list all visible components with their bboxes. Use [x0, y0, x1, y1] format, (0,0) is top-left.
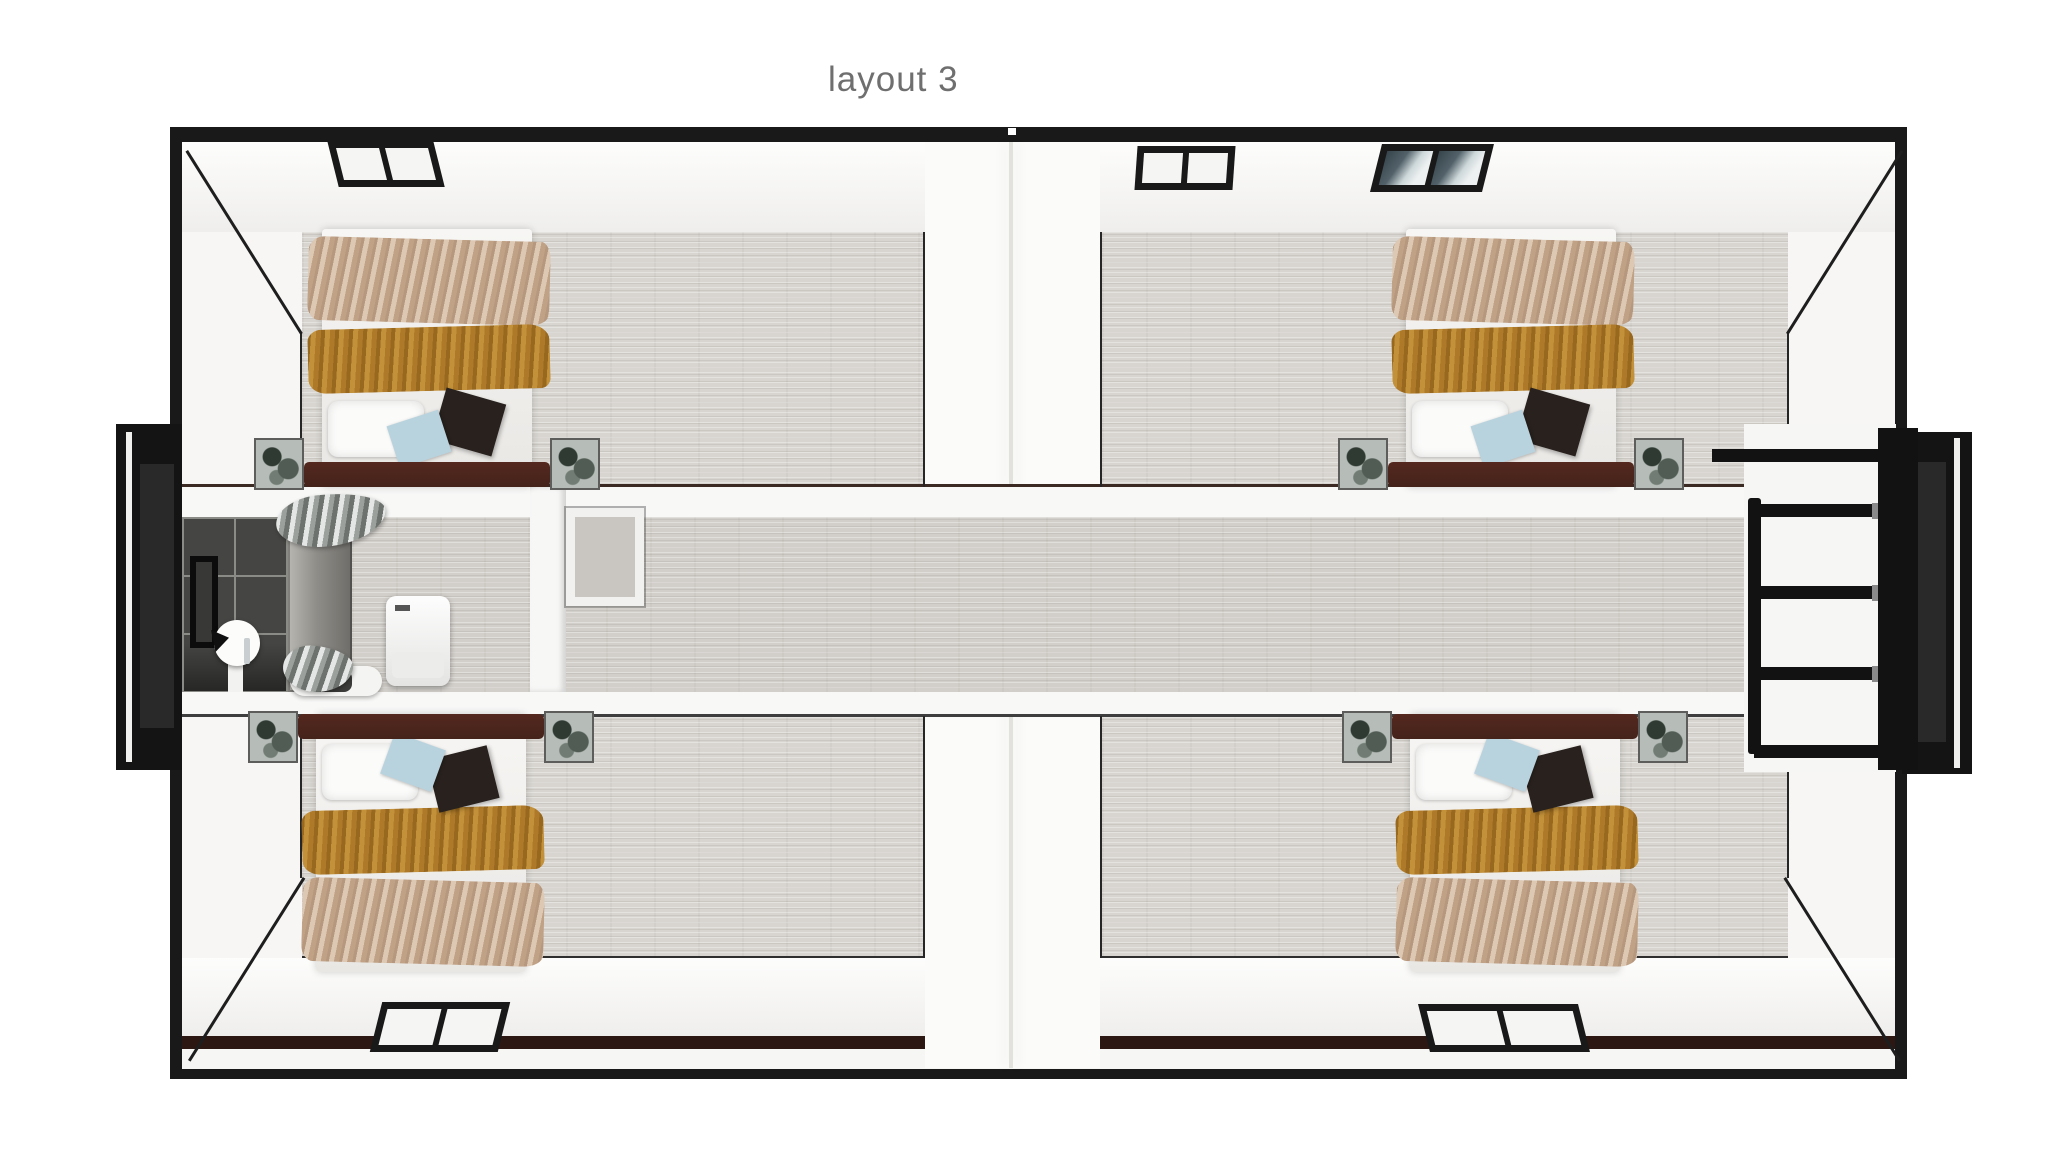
left-exterior-door	[116, 424, 182, 770]
window-pane	[379, 1009, 442, 1045]
floorplan-canvas: layout 3	[0, 0, 2048, 1152]
module-joint-notch	[1008, 128, 1016, 135]
nightstand-plant	[248, 711, 298, 763]
ladder-side-slab	[1878, 428, 1918, 770]
page-title: layout 3	[828, 60, 959, 100]
bathroom-pass-window	[566, 508, 644, 606]
ladder-rung	[1712, 449, 1882, 462]
door-inner-panel	[140, 464, 174, 728]
blanket-gold	[307, 324, 551, 394]
divider-edge-line	[1100, 716, 1102, 958]
hallway-floor	[562, 517, 1748, 692]
ladder-rung	[1754, 586, 1882, 599]
headboard-bench	[298, 714, 544, 739]
divider-seam	[1009, 142, 1013, 487]
bed-top-right	[1396, 229, 1626, 487]
nightstand-plant	[544, 711, 594, 763]
window-pane	[1431, 151, 1485, 185]
bed-bottom-left	[306, 714, 536, 972]
headboard-bench	[304, 462, 550, 487]
divider-seam	[1009, 692, 1013, 1068]
bathroom-sink	[214, 620, 260, 666]
bed-top-left	[312, 229, 542, 487]
divider-edge-line	[923, 716, 925, 958]
center-divider-top	[925, 142, 1100, 487]
window-pane	[439, 1009, 502, 1045]
detergent-slot	[395, 605, 410, 611]
window-top-left	[327, 141, 444, 187]
window-pane	[1142, 153, 1183, 183]
divider-edge-line	[1100, 232, 1102, 487]
ladder-rung	[1754, 667, 1882, 680]
nightstand-plant	[1342, 711, 1392, 763]
window-pane	[1427, 1011, 1505, 1045]
blanket-gold	[1395, 805, 1639, 875]
bed-bottom-right	[1400, 714, 1630, 972]
window-pane	[385, 148, 436, 180]
window-pane	[1503, 1011, 1581, 1045]
blanket-beige	[1391, 236, 1635, 326]
machine-lid	[392, 652, 444, 678]
ladder-rung	[1754, 745, 1880, 758]
ladder-rung	[1754, 504, 1882, 517]
blanket-beige	[307, 236, 551, 326]
blanket-gold	[301, 805, 545, 875]
bathroom-partition-wall	[530, 487, 566, 692]
window-pane	[1187, 153, 1228, 183]
blanket-beige	[1395, 877, 1639, 967]
window-pane	[1379, 151, 1433, 185]
window-bottom-right	[1418, 1004, 1590, 1052]
window-top-right	[1370, 144, 1494, 192]
center-divider-bottom	[925, 692, 1100, 1068]
sink-faucet	[244, 638, 250, 664]
building-wall-top	[170, 127, 1907, 142]
window-top-center-right	[1134, 146, 1235, 190]
divider-edge-line	[923, 232, 925, 487]
door-stripe	[126, 432, 132, 762]
washing-machine	[386, 596, 450, 686]
door-stripe	[1954, 438, 1960, 768]
nightstand-plant	[1634, 438, 1684, 490]
headboard-bench	[1392, 714, 1638, 739]
headboard-bench	[1388, 462, 1634, 487]
ladder-rail	[1748, 498, 1761, 754]
nightstand-plant	[1638, 711, 1688, 763]
nightstand-plant	[550, 438, 600, 490]
blanket-beige	[301, 877, 545, 967]
window-pane	[336, 148, 387, 180]
nightstand-plant	[254, 438, 304, 490]
hallway-top-wall	[182, 487, 1895, 517]
window-bottom-left	[370, 1002, 510, 1052]
nightstand-plant	[1338, 438, 1388, 490]
blanket-gold	[1391, 324, 1635, 394]
